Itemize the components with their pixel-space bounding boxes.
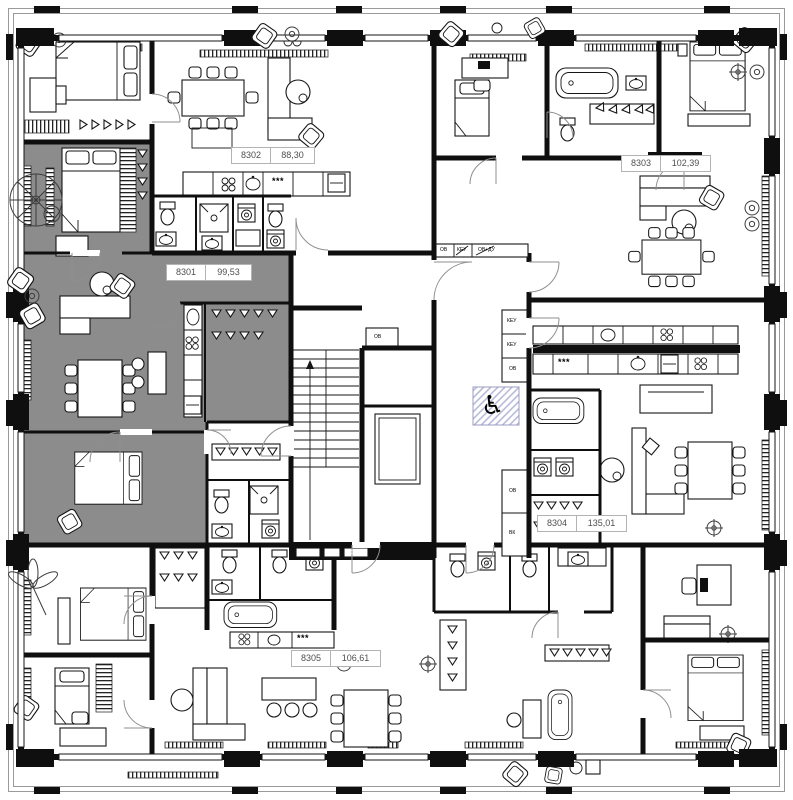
- apartment-number: 8305: [292, 651, 331, 666]
- apartment-area: 135,01: [577, 516, 626, 531]
- palm-plant-decoration: [10, 174, 62, 226]
- stairwell: [293, 310, 359, 556]
- shaft-label: КЕУ: [507, 342, 516, 348]
- wheelchair-accessible-icon: ♿: [481, 390, 504, 420]
- apartment-label-8303[interactable]: 8303 102,39: [621, 155, 711, 172]
- shaft-label: КЕУ: [457, 247, 466, 253]
- shaft-label: ВК: [327, 550, 333, 556]
- shaft-label: ВК: [509, 530, 515, 536]
- apartment-label-8304[interactable]: 8304 135,01: [537, 515, 627, 532]
- shaft-label: ОВ: [440, 247, 447, 253]
- stove-mark: ***: [297, 633, 309, 643]
- stove-mark: ***: [272, 176, 284, 186]
- apartment-number: 8301: [167, 265, 206, 280]
- shaft-label: ОВ: [509, 366, 516, 372]
- shaft-label: ОВ: [374, 334, 381, 340]
- floor-plan-drawing: [0, 0, 793, 800]
- floor-plan-canvas: 8301 99,53 8302 88,30 8303 102,39 8304 1…: [0, 0, 793, 800]
- apartment-8303-region[interactable]: [434, 38, 772, 300]
- apartment-label-8301[interactable]: 8301 99,53: [166, 264, 252, 281]
- apartment-area: 88,30: [271, 148, 314, 163]
- apartment-number: 8303: [622, 156, 661, 171]
- apartment-label-8302[interactable]: 8302 88,30: [231, 147, 315, 164]
- stove-mark: ***: [558, 357, 570, 367]
- apartment-area: 99,53: [206, 265, 251, 280]
- apartment-area: 102,39: [661, 156, 710, 171]
- shaft-label: ЭОМ: [299, 550, 311, 556]
- shaft-label: ЭОМ: [347, 550, 359, 556]
- shaft-label: ОВ: [509, 488, 516, 494]
- apartment-label-8305[interactable]: 8305 106,61: [291, 650, 381, 667]
- apartment-number: 8304: [538, 516, 577, 531]
- shaft-label: ОВ+ДУ: [478, 247, 495, 253]
- shaft-label: КЕУ: [507, 318, 516, 324]
- apartment-area: 106,61: [331, 651, 380, 666]
- apartment-number: 8302: [232, 148, 271, 163]
